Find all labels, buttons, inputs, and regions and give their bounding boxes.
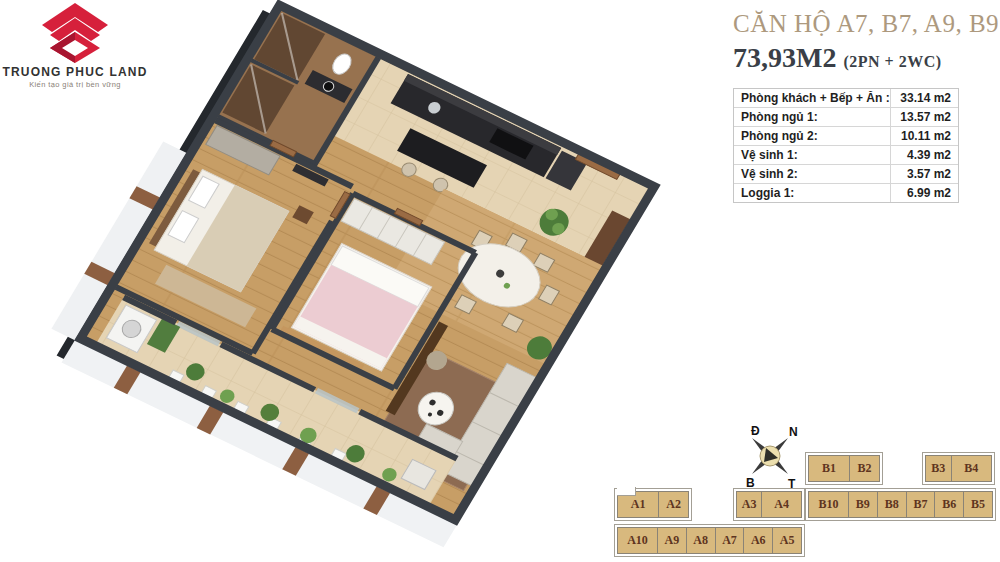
- unit-cell: A8: [686, 527, 716, 554]
- room-label: Vệ sinh 2:: [734, 167, 890, 181]
- table-row: Phòng khách + Bếp + Ăn : 33.14 m2: [734, 89, 958, 108]
- unit-segment: A10 A9 A8 A7 A6 A5: [614, 524, 805, 557]
- block-a-outline-notch: [617, 487, 636, 496]
- unit-cell: B10: [808, 491, 849, 518]
- floorplan-rooms: [81, 5, 655, 520]
- unit-cell: B7: [906, 491, 936, 518]
- unit-cell: B5: [963, 491, 993, 518]
- unit-cell: B2: [849, 455, 880, 482]
- room-label: Phòng khách + Bếp + Ăn :: [734, 91, 890, 105]
- room-label: Vệ sinh 1:: [734, 148, 890, 162]
- room-area-value: 6.99 m2: [890, 184, 958, 202]
- compass-rose-icon: [748, 434, 792, 478]
- room-area-value: 10.11 m2: [890, 127, 958, 145]
- unit-cell: B8: [877, 491, 907, 518]
- room-label: Loggia 1:: [734, 186, 890, 200]
- room-area-value: 4.39 m2: [890, 146, 958, 164]
- company-tagline: Kiến tạo giá trị bền vững: [0, 80, 150, 89]
- unit-segment: B1 B2: [805, 452, 883, 485]
- company-logo: TRUONG PHUC LAND Kiến tạo giá trị bền vữ…: [0, 2, 150, 89]
- table-row: Loggia 1: 6.99 m2: [734, 184, 958, 202]
- table-row: Phòng ngủ 1: 13.57 m2: [734, 108, 958, 127]
- unit-cell: B1: [808, 455, 850, 482]
- unit-cell: A7: [715, 527, 745, 554]
- unit-cell: B6: [934, 491, 964, 518]
- area-note: (2PN + 2WC): [843, 53, 941, 70]
- unit-cell: A2: [658, 491, 689, 518]
- compass-rose: Đ N B T: [735, 424, 807, 492]
- brand-diamond-chevron-icon: [30, 2, 120, 64]
- unit-segment: B10 B9 B8 B7 B6 B5: [805, 488, 996, 521]
- unit-cell: B4: [951, 455, 993, 482]
- apartment-title: CĂN HỘ A7, B7, A9, B9: [733, 10, 998, 38]
- company-name: TRUONG PHUC LAND: [0, 65, 150, 79]
- unit-segment: B3 B4: [922, 452, 995, 485]
- unit-block-b: B1 B2 B3 B4 B10 B9 B8 B7 B6 B5: [803, 450, 999, 522]
- unit-cell: A9: [657, 527, 687, 554]
- area-value: 73,93M2: [733, 42, 836, 73]
- table-row: Vệ sinh 2: 3.57 m2: [734, 165, 958, 184]
- room-label: Phòng ngủ 1:: [734, 110, 890, 124]
- unit-cell: A4: [761, 491, 802, 518]
- room-area-value: 13.57 m2: [890, 108, 958, 126]
- unit-segment: A3 A4: [733, 488, 805, 521]
- table-row: Phòng ngủ 2: 10.11 m2: [734, 127, 958, 146]
- unit-cell: A10: [617, 527, 658, 554]
- unit-block-a: A1 A2 A3 A4 A10 A9 A8 A7 A6 A5: [612, 487, 808, 558]
- room-label: Phòng ngủ 2:: [734, 129, 890, 143]
- room-area-value: 33.14 m2: [890, 89, 958, 107]
- room-area-table: Phòng khách + Bếp + Ăn : 33.14 m2 Phòng …: [733, 88, 959, 203]
- unit-cell: B3: [925, 455, 952, 482]
- unit-cell: A5: [772, 527, 802, 554]
- unit-cell: B9: [848, 491, 878, 518]
- unit-cell: A3: [736, 491, 762, 518]
- table-row: Vệ sinh 1: 4.39 m2: [734, 146, 958, 165]
- unit-cell: A6: [743, 527, 773, 554]
- room-area-value: 3.57 m2: [890, 165, 958, 183]
- apartment-area: 73,93M2(2PN + 2WC): [733, 42, 998, 74]
